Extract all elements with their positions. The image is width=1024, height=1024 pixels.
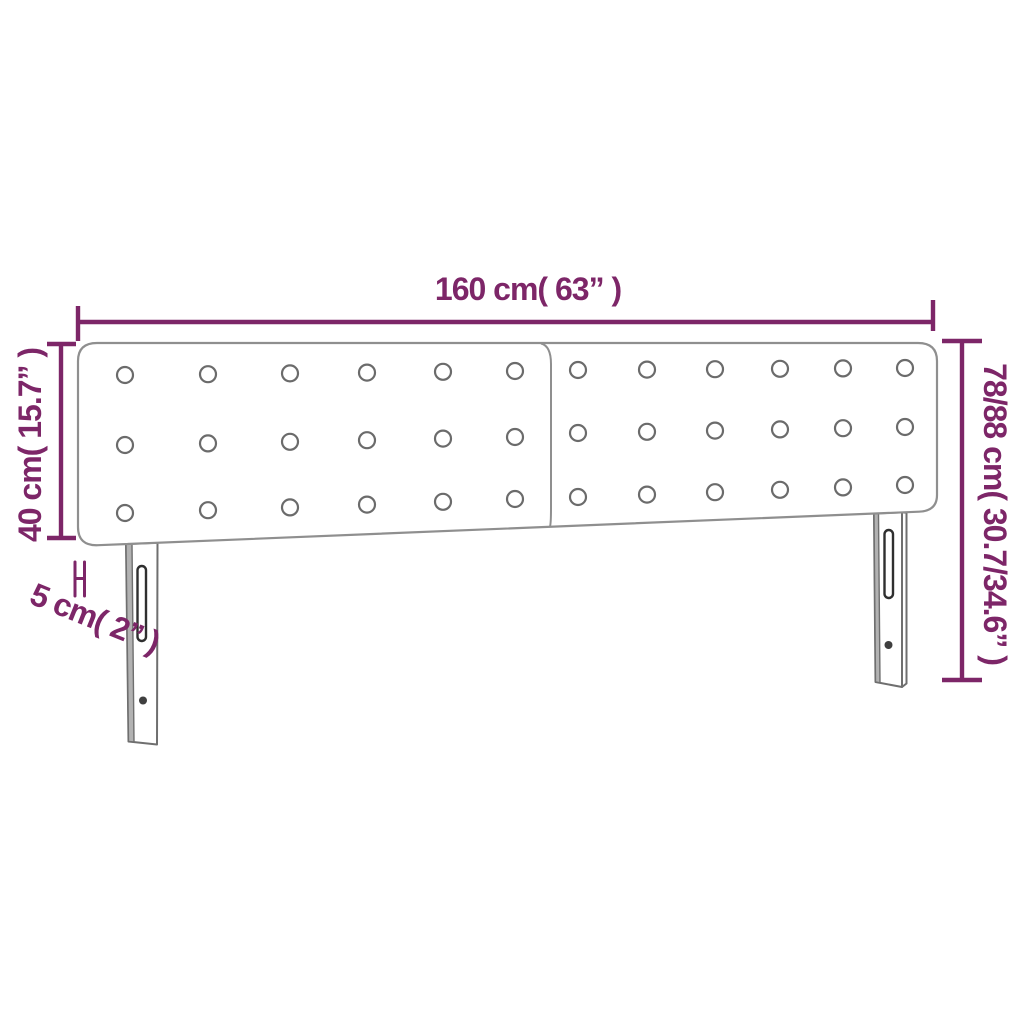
button-tuft	[282, 499, 298, 515]
button-tuft	[772, 361, 788, 377]
width-dimension: 160 cm( 63” )	[78, 271, 933, 341]
button-tuft	[772, 421, 788, 437]
button-tuft	[200, 502, 216, 518]
button-tuft	[282, 434, 298, 450]
total-height-dimension: 78/88 cm( 30.7/34.6” )	[942, 341, 1013, 680]
button-tuft	[200, 435, 216, 451]
right-leg-screw-hole	[885, 641, 893, 649]
button-tuft	[507, 429, 523, 445]
button-tuft	[570, 489, 586, 505]
button-tuft	[507, 491, 523, 507]
button-tuft	[897, 360, 913, 376]
button-tuft	[835, 479, 851, 495]
button-tuft	[435, 431, 451, 447]
button-tuft	[359, 365, 375, 381]
panel-height-dimension-line	[47, 344, 76, 538]
button-tuft	[117, 437, 133, 453]
button-tuft	[117, 505, 133, 521]
total-height-dimension-label: 78/88 cm( 30.7/34.6” )	[977, 363, 1013, 665]
button-tuft	[282, 365, 298, 381]
right-leg-slot	[885, 530, 894, 598]
button-tuft	[835, 420, 851, 436]
right-leg-edge-shade	[874, 513, 880, 683]
button-tuft	[772, 482, 788, 498]
button-tuft	[707, 361, 723, 377]
panel-height-dimension-label: 40 cm( 15.7” )	[12, 348, 48, 542]
right-leg-side-face	[902, 512, 907, 687]
headboard-dimension-diagram: 160 cm( 63” ) 40 cm( 15.7” ) 5 cm( 2” ) …	[0, 0, 1024, 1024]
button-tuft	[507, 363, 523, 379]
button-tuft	[359, 432, 375, 448]
total-height-dimension-line	[942, 341, 982, 680]
button-tuft	[359, 497, 375, 513]
button-tuft	[897, 419, 913, 435]
button-tuft	[639, 362, 655, 378]
diagram-canvas: 160 cm( 63” ) 40 cm( 15.7” ) 5 cm( 2” ) …	[0, 0, 1024, 1024]
button-tuft	[897, 477, 913, 493]
button-tuft	[639, 424, 655, 440]
button-tuft	[570, 362, 586, 378]
button-tuft	[435, 494, 451, 510]
button-tuft	[639, 487, 655, 503]
button-tuft	[835, 360, 851, 376]
button-tuft	[435, 364, 451, 380]
panel-height-dimension: 40 cm( 15.7” )	[12, 344, 76, 542]
button-tuft	[707, 423, 723, 439]
width-dimension-label: 160 cm( 63” )	[435, 271, 622, 307]
left-leg-screw-hole	[139, 697, 147, 705]
button-tuft	[117, 367, 133, 383]
button-tuft	[200, 366, 216, 382]
button-tuft	[707, 484, 723, 500]
button-tuft	[570, 425, 586, 441]
headboard-drawing	[78, 343, 937, 745]
right-leg	[874, 512, 907, 687]
